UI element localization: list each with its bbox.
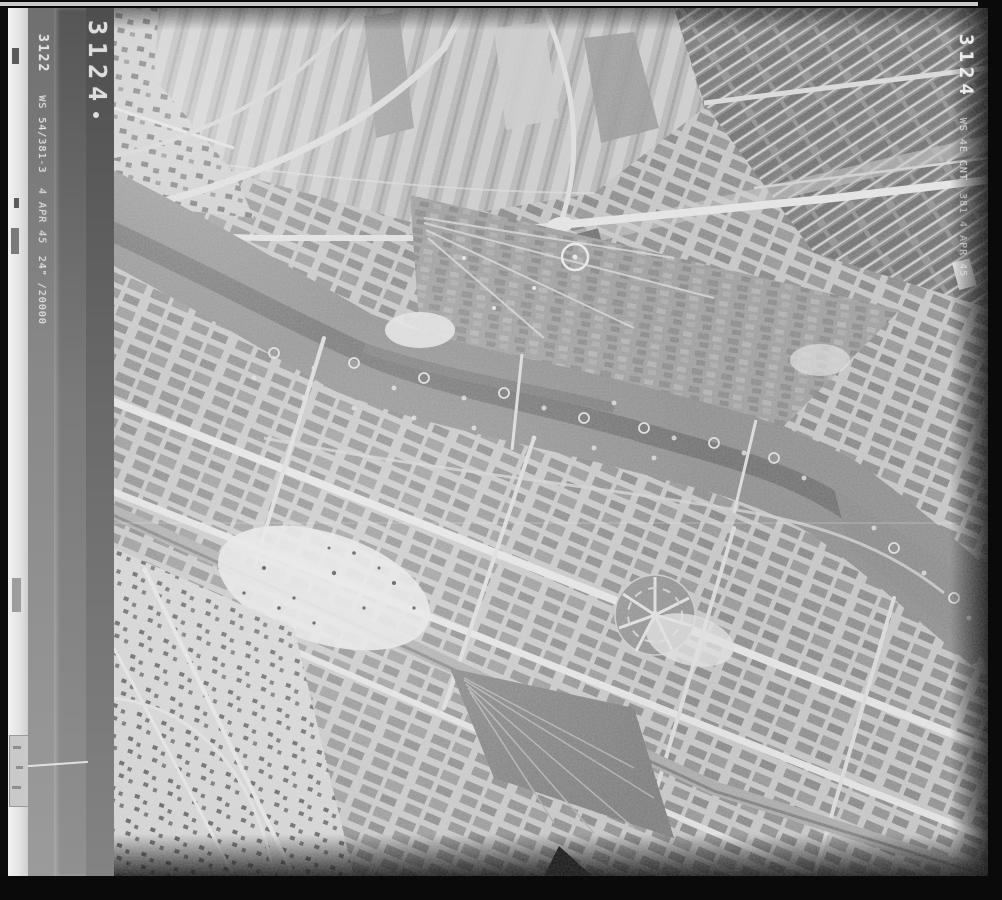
frame-number-right: 3124 bbox=[955, 34, 977, 100]
previous-frame-number: 3122 bbox=[35, 34, 50, 73]
film-scan: 3122WS54/381-34 APR 4524"/20000 3124 bbox=[0, 0, 1002, 900]
border-right bbox=[988, 0, 1002, 900]
titling-date: 4 APR 45 bbox=[36, 187, 47, 244]
right-edge-marking: 3124WS 4E CNT381 4 APR 45 bbox=[955, 34, 977, 277]
leader-mark bbox=[11, 228, 19, 254]
film-grain bbox=[114, 8, 988, 876]
focal-length: 24" bbox=[36, 256, 47, 277]
sortie-reference: 54/381-3 bbox=[36, 117, 47, 173]
border-bottom bbox=[0, 876, 1002, 900]
film-strip-blank bbox=[54, 8, 86, 876]
leader-mark bbox=[14, 198, 19, 208]
frame-number-dot bbox=[93, 112, 99, 118]
film-strip-frame-edge bbox=[86, 8, 114, 876]
leader-mark bbox=[12, 48, 19, 64]
titling-text: 3122WS54/381-34 APR 4524"/20000 bbox=[35, 34, 50, 325]
leader-mark bbox=[12, 578, 21, 612]
photo-artifacts bbox=[114, 8, 988, 876]
frame-number-edge: 3124 bbox=[83, 20, 112, 118]
right-marking-line2: 381 4 APR 45 bbox=[957, 193, 968, 277]
right-marking-line1: WS 4E CNT bbox=[957, 118, 968, 181]
aerial-photograph bbox=[114, 8, 988, 876]
splice-tab bbox=[9, 735, 29, 807]
film-edge-highlight bbox=[0, 2, 978, 6]
photo-scale: /20000 bbox=[36, 283, 47, 325]
titling-prefix: WS bbox=[36, 95, 47, 109]
